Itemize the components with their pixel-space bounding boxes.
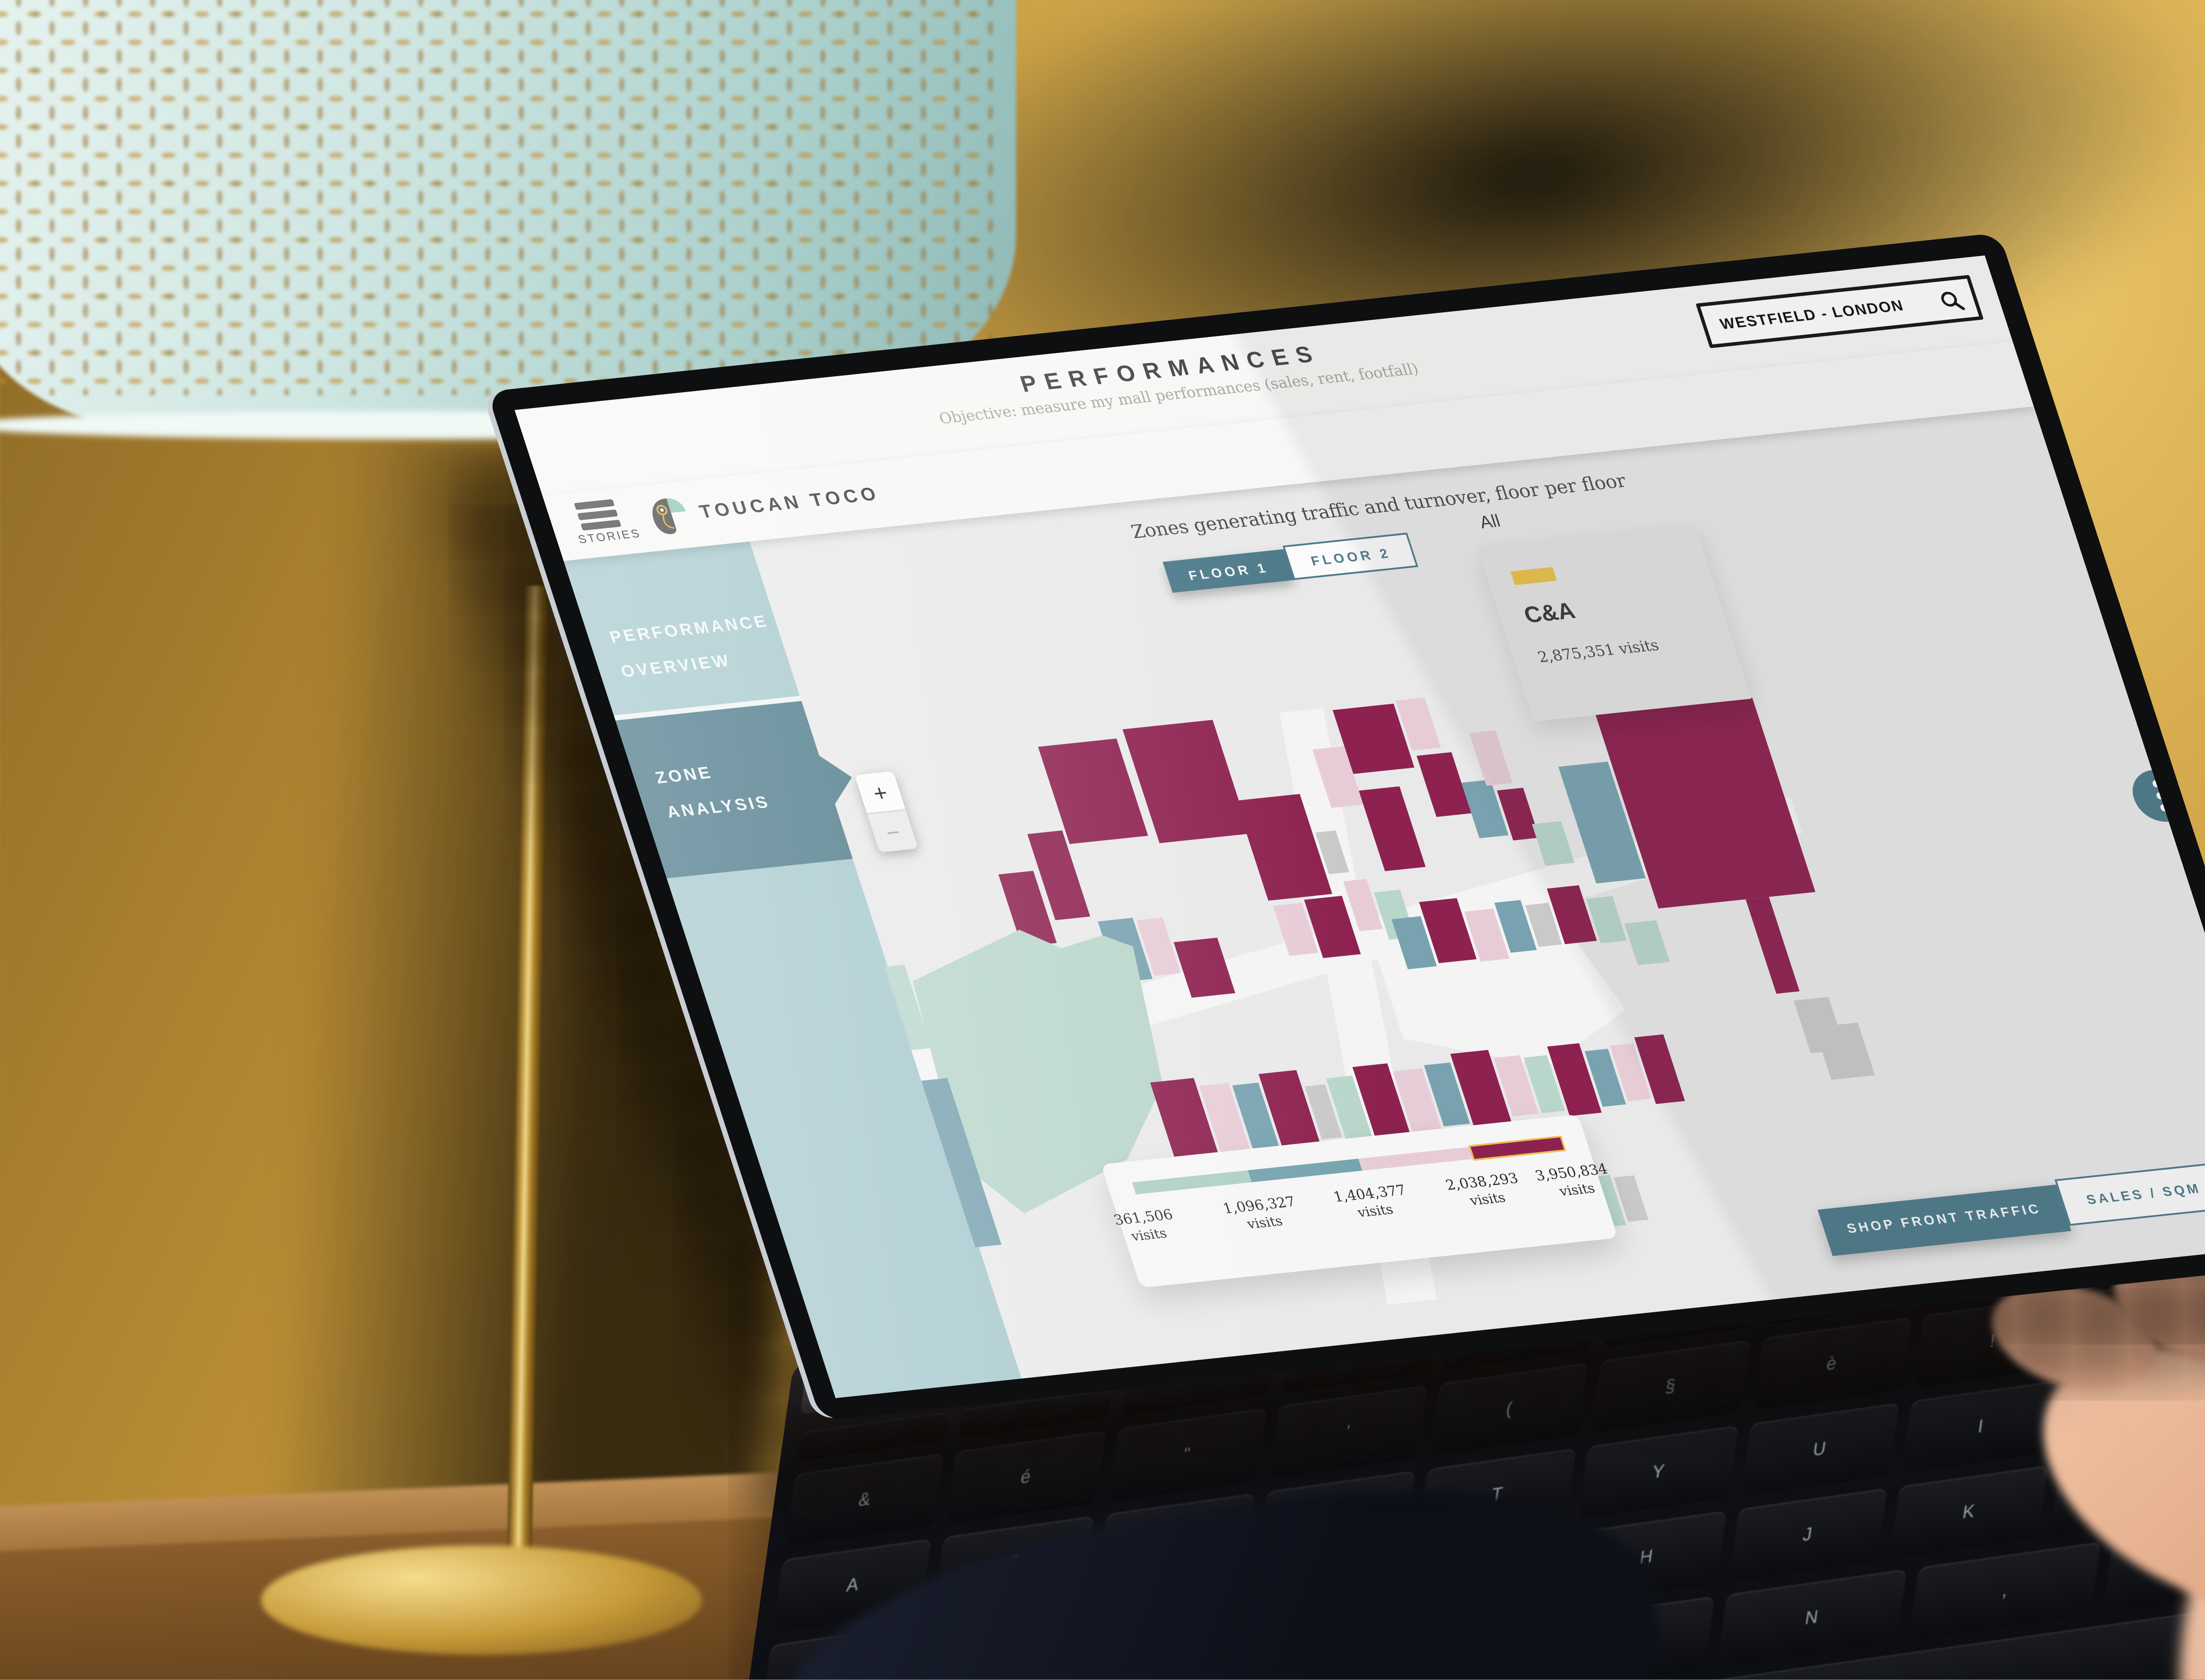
keyboard-key: ( bbox=[1430, 1362, 1589, 1456]
lamp-base bbox=[261, 1545, 702, 1655]
scope-label[interactable]: All bbox=[1477, 513, 1503, 533]
keyboard-key: " bbox=[1107, 1408, 1267, 1501]
stories-menu-button[interactable]: STORIES bbox=[567, 498, 633, 547]
map-zone[interactable] bbox=[1359, 786, 1426, 871]
keyboard-key: , bbox=[1909, 1542, 2100, 1640]
keyboard-key: U bbox=[1740, 1403, 1899, 1496]
keyboard-key: I bbox=[1901, 1380, 2060, 1474]
keyboard-key: § bbox=[1591, 1340, 1750, 1433]
map-zone[interactable] bbox=[1794, 995, 1875, 1081]
zone-visits: 2,875,351 visits bbox=[1536, 638, 1662, 667]
map-zone[interactable] bbox=[1469, 730, 1513, 786]
search-input[interactable]: WESTFIELD - LONDON bbox=[1696, 275, 1984, 348]
legend-segment bbox=[1470, 1137, 1564, 1159]
keyboard-key: J bbox=[1728, 1488, 1887, 1582]
tab-sales-sqm[interactable]: SALES / SQM bbox=[2055, 1162, 2205, 1226]
tab-floor-1[interactable]: FLOOR 1 bbox=[1162, 549, 1294, 593]
keyboard-key: Y bbox=[1579, 1425, 1738, 1519]
map-zone[interactable] bbox=[1532, 821, 1575, 866]
map-zone[interactable] bbox=[1624, 920, 1670, 965]
map-zone[interactable] bbox=[1745, 897, 1799, 994]
toucan-icon bbox=[641, 494, 697, 539]
keyboard-key: N bbox=[1716, 1569, 1907, 1667]
sidebar-item-performance-overview[interactable]: PERFORMANCE OVERVIEW bbox=[577, 583, 801, 720]
hamburger-icon bbox=[567, 498, 628, 531]
keyboard-key: é bbox=[946, 1430, 1105, 1524]
dot-icon bbox=[2156, 793, 2164, 799]
keyboard-key bbox=[797, 1411, 950, 1461]
floor-toggle: FLOOR 1 FLOOR 2 bbox=[1162, 536, 1420, 596]
tab-floor-2[interactable]: FLOOR 2 bbox=[1283, 533, 1419, 580]
dot-icon bbox=[2160, 804, 2168, 811]
keyboard-key: & bbox=[785, 1453, 944, 1547]
zone-swatch bbox=[1510, 567, 1557, 585]
dashboard-app: PERFORMANCES Objective: measure my mall … bbox=[515, 255, 2205, 1398]
photo-scene: &é"'(§è!çà)-AZERTYUIOP^$QSDFGHJKLMù*WXCV… bbox=[0, 0, 2205, 1680]
legend-segment bbox=[1248, 1159, 1363, 1182]
search-value: WESTFIELD - LONDON bbox=[1704, 292, 1943, 334]
legend-segment bbox=[1359, 1147, 1474, 1171]
legend-stop: 1,404,377visits bbox=[1311, 1180, 1434, 1225]
keyboard-key: K bbox=[1889, 1465, 2048, 1559]
brand-logo[interactable]: TOUCAN TOCO bbox=[641, 474, 886, 539]
zone-name: C&A bbox=[1521, 597, 1578, 628]
dashboard-content: Zones generating traffic and turnover, f… bbox=[564, 407, 2205, 1398]
legend-segment bbox=[1132, 1170, 1252, 1194]
dot-icon bbox=[2153, 781, 2160, 787]
brand-name: TOUCAN TOCO bbox=[697, 484, 883, 523]
keyboard-key: è bbox=[1752, 1317, 1911, 1411]
keyboard-key: ' bbox=[1268, 1385, 1428, 1479]
legend-stop: 1,096,327visits bbox=[1200, 1192, 1323, 1236]
stories-label: STORIES bbox=[577, 529, 633, 547]
sidebar-item-zone-analysis[interactable]: ZONE ANALYSIS bbox=[615, 701, 852, 878]
